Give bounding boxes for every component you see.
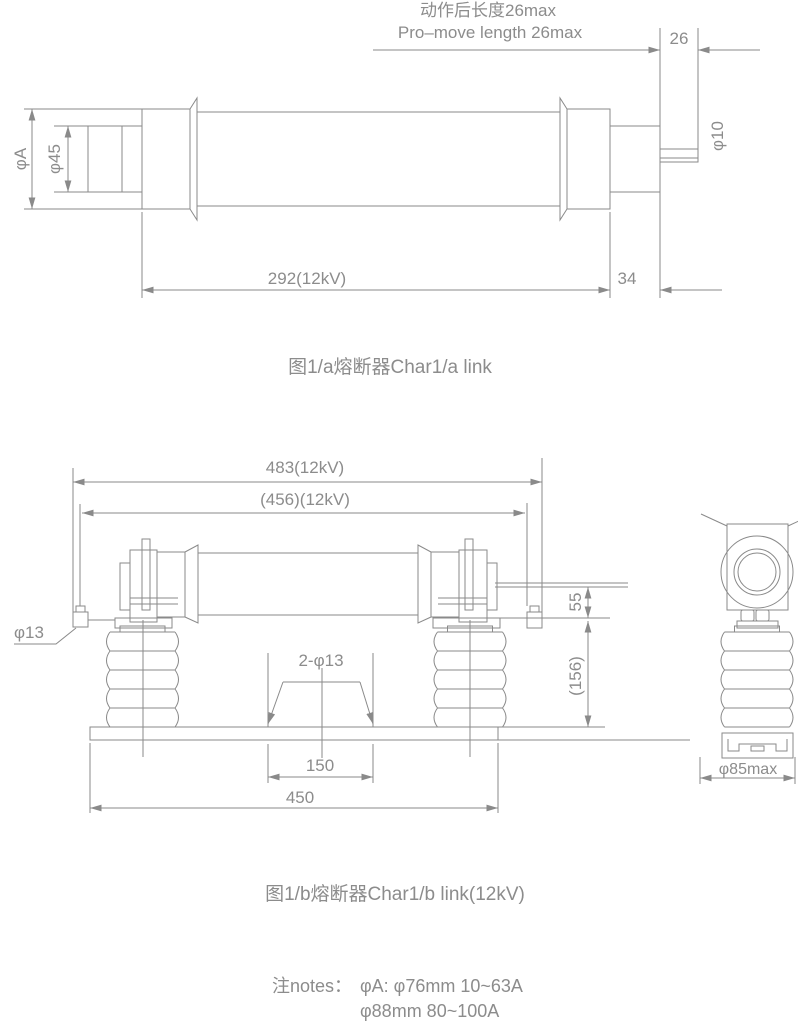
dim-34-label: 34: [618, 269, 637, 288]
notes-label: 注notes：: [272, 976, 352, 996]
right-ferrule: [431, 552, 459, 617]
left-clip: [130, 550, 157, 622]
striker-pin: [660, 149, 698, 162]
figure-b-caption: 图1/b熔断器Char1/b link(12kV): [265, 883, 525, 905]
left-flare-b: [185, 545, 198, 623]
dim-150-label: 150: [306, 756, 334, 775]
left-ferrule: [157, 552, 185, 617]
dim-55-156: 55 (156): [566, 587, 588, 727]
clip-bracket-end-view: [727, 524, 788, 610]
base-plate: [90, 727, 498, 740]
dim-2phi13-label: 2-φ13: [298, 651, 343, 670]
dim-phiA-label: φA: [11, 147, 30, 170]
dim-150-450: 150 450: [90, 743, 498, 813]
notes: 注notes： φA: φ76mm 10~63A φ88mm 80~100A: [272, 976, 523, 1021]
left-contact-cap: [88, 126, 142, 192]
drawing-page: φA φ45 动作后长度26max Pro–move length 26max …: [0, 0, 798, 1022]
figure-a-caption: 图1/a熔断器Char1/a link: [288, 356, 492, 378]
fuse-tube-b: [198, 553, 418, 615]
left-terminal-cap: [76, 606, 85, 612]
right-flare-b: [418, 545, 431, 623]
dim-483-456: 483(12kV) (456)(12kV): [73, 458, 542, 612]
right-terminal-cap: [530, 606, 539, 612]
right-flare: [560, 98, 567, 220]
action-length-en: Pro–move length 26max: [398, 23, 583, 42]
dim-156-label: (156): [566, 656, 585, 696]
right-terminal-block: [527, 612, 542, 628]
dim-483-label: 483(12kV): [266, 458, 344, 477]
fuse-tube-end-view: [721, 536, 793, 608]
insulator-end-view: [721, 626, 793, 727]
dim-450-label: 450: [286, 788, 314, 807]
dim-55-label: 55: [566, 593, 585, 612]
left-terminal-block: [73, 612, 88, 627]
dim-phi10-label: φ10: [708, 121, 727, 151]
dim-292-34: 292(12kV) 34: [142, 212, 722, 298]
dim-26-label: 26: [670, 29, 689, 48]
dim-292-label: 292(12kV): [268, 269, 346, 288]
technical-drawing: φA φ45 动作后长度26max Pro–move length 26max …: [0, 0, 798, 1022]
dim-phi13: φ13: [14, 623, 76, 644]
left-flare: [190, 98, 197, 220]
insulator-pedestal-end-view: [737, 621, 778, 628]
dim-phi45-label: φ45: [45, 144, 64, 174]
dim-456-label: (456)(12kV): [260, 490, 350, 509]
dim-phi85-label: φ85max: [719, 761, 777, 778]
left-end-cap: [142, 109, 190, 209]
dim-mounting-holes: 2-φ13: [268, 651, 373, 758]
fuse-assembly-outline: [73, 539, 628, 628]
figure-a: φA φ45 动作后长度26max Pro–move length 26max …: [11, 1, 760, 378]
figure-b: 483(12kV) (456)(12kV): [14, 458, 798, 905]
fuse-cartridge-outline: [88, 98, 698, 220]
dim-phi45: φ45: [45, 126, 88, 192]
dim-phi13-label: φ13: [14, 623, 44, 642]
striker-housing: [610, 126, 660, 192]
side-view: φ85max: [700, 514, 798, 784]
fuse-tube: [197, 112, 560, 206]
notes-line1: φA: φ76mm 10~63A: [360, 976, 523, 996]
action-length-cn: 动作后长度26max: [420, 1, 557, 20]
notes-line2: φ88mm 80~100A: [360, 1001, 499, 1021]
left-clip-plate: [120, 563, 130, 610]
right-end-cap: [567, 109, 610, 209]
